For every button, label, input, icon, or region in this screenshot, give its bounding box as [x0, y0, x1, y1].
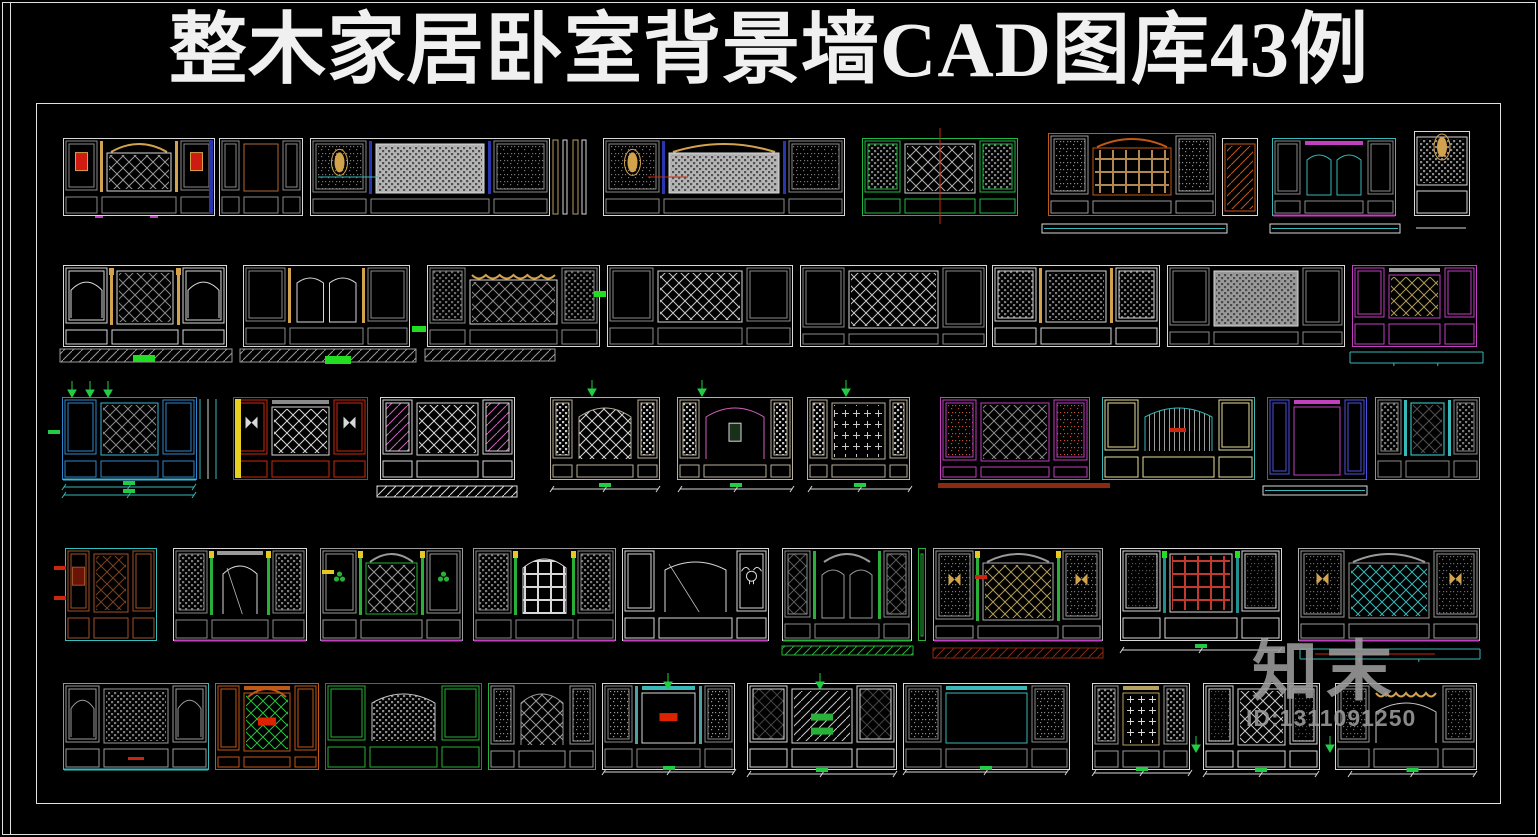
cad-elevation — [808, 398, 910, 480]
cad-elevation — [678, 398, 793, 480]
cad-elevation — [489, 684, 596, 770]
cad-elevation — [63, 398, 197, 480]
cad-elevation — [66, 549, 157, 641]
cad-elevation — [1268, 398, 1367, 480]
cad-elevation — [234, 398, 368, 480]
watermark-id: ID:1311091250 — [1246, 705, 1416, 732]
cad-elevation — [919, 549, 926, 641]
watermark-brand: 知末 — [1252, 638, 1400, 704]
cad-elevation — [904, 684, 1070, 770]
cad-elevation — [623, 549, 769, 641]
cad-elevation — [244, 266, 410, 347]
cad-elevation — [326, 684, 482, 770]
cad-elevation — [428, 266, 600, 347]
cad-elevation — [1299, 549, 1480, 641]
cad-elevation — [604, 139, 845, 216]
cad-elevation — [1121, 549, 1282, 641]
cad-elevation — [603, 684, 735, 770]
cad-elevation — [551, 398, 660, 480]
cad-elevation — [64, 684, 209, 770]
cad-elevation — [1093, 684, 1190, 770]
cad-elevation — [220, 139, 303, 216]
cad-elevation — [174, 549, 307, 641]
cad-elevation — [608, 266, 793, 347]
cad-elevation — [474, 549, 616, 641]
cad-elevation — [801, 266, 987, 347]
cad-sheet: { "title": "整木家居卧室背景墙CAD图库43例", "waterma… — [0, 0, 1538, 837]
cad-elevation — [1168, 266, 1345, 347]
cad-elevation — [321, 549, 463, 641]
cad-elevation — [381, 398, 515, 480]
cad-elevation — [941, 398, 1090, 480]
cad-elevation — [64, 266, 227, 347]
cad-elevation — [1415, 132, 1470, 216]
cad-elevation — [783, 549, 912, 641]
cad-elevation — [748, 684, 897, 770]
cad-elevation — [1103, 398, 1255, 480]
cad-elevation — [993, 266, 1160, 347]
cad-elevation — [216, 684, 319, 770]
cad-elevation — [1273, 139, 1396, 216]
cad-elevation — [64, 139, 215, 216]
cad-elevation — [1376, 398, 1480, 480]
cad-elevation — [1223, 139, 1258, 216]
cad-elevation — [934, 549, 1103, 641]
cad-elevation — [1353, 266, 1477, 347]
cad-elevation — [1049, 134, 1216, 216]
